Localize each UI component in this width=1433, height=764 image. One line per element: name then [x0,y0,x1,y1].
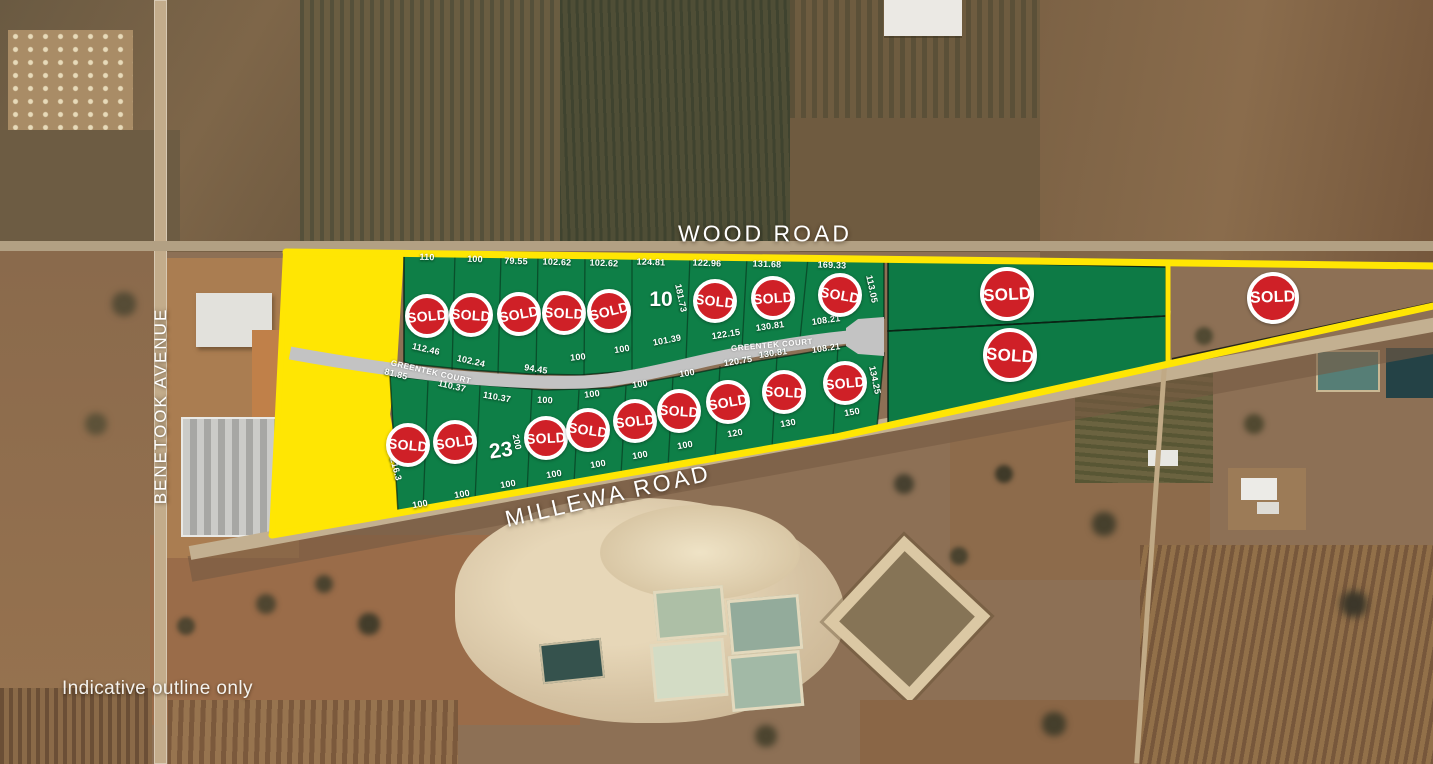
dimension-label: 131.68 [752,259,781,270]
dimension-label: 122.96 [692,258,721,269]
sold-badge: SOLD [693,279,737,323]
sold-badge-label: SOLD [544,305,585,321]
dimension-label: 100 [632,378,649,390]
sold-badge-label: SOLD [694,292,735,310]
sold-badge: SOLD [983,328,1037,382]
dimension-label: 100 [679,367,696,379]
benetook-avenue-label: BENETOOK AVENUE [151,308,171,505]
dimension-label: 100 [467,254,483,265]
dimension-label: 122.15 [711,327,741,341]
dimension-label: 100 [614,343,631,355]
dimension-label: 150 [843,406,860,419]
dimension-label: 100 [676,439,693,452]
wood-road-label: WOOD ROAD [678,221,852,248]
dimension-label: 113.05 [864,274,880,304]
sold-badge-label: SOLD [588,299,630,322]
dimension-label: 181.73 [673,283,689,313]
overlay-labels: 110112.46SOLD100102.24SOLD79.5594.45SOLD… [0,0,1433,764]
sold-badge: SOLD [587,289,631,333]
sold-badge: SOLD [497,292,541,336]
dimension-label: 102.62 [542,257,571,268]
dimension-label: 124.81 [636,257,665,268]
sold-badge-label: SOLD [406,307,447,324]
dimension-label: 100 [631,449,648,462]
sold-badge: SOLD [818,273,862,317]
dimension-label: 100 [499,478,516,491]
sold-badge-label: SOLD [982,284,1031,304]
subdivision-sales-map: 110112.46SOLD100102.24SOLD79.5594.45SOLD… [0,0,1433,764]
sold-badge-label: SOLD [567,420,609,439]
dimension-label: 120.75 [723,354,753,368]
dimension-label: 102.62 [589,258,618,269]
sold-badge-label: SOLD [498,304,540,325]
sold-badge-label: SOLD [764,384,805,400]
sold-badge-label: SOLD [819,285,861,306]
dimension-label: 79.55 [504,256,528,267]
dimension-label: 100 [453,488,470,501]
dimension-label: 100 [570,351,587,363]
sold-badge: SOLD [613,399,657,443]
sold-badge: SOLD [386,423,430,467]
sold-badge-label: SOLD [985,345,1035,365]
lot-number: 10 [649,288,672,312]
dimension-label: 130.81 [755,319,785,333]
sold-badge-label: SOLD [707,392,749,413]
dimension-label: 108.21 [811,341,841,355]
sold-badge: SOLD [751,276,795,320]
dimension-label: 100 [411,498,428,511]
sold-badge-label: SOLD [614,412,655,430]
sold-badge-label: SOLD [659,403,700,420]
sold-badge-label: SOLD [1250,289,1296,307]
dimension-label: 110 [419,252,434,263]
disclaimer-note: Indicative outline only [62,678,253,700]
sold-badge-label: SOLD [824,374,865,391]
sold-badge-label: SOLD [451,307,492,324]
dimension-label: 100 [589,458,606,471]
dimension-label: 112.46 [411,341,441,357]
sold-badge-label: SOLD [526,430,567,446]
sold-badge: SOLD [657,389,701,433]
sold-badge: SOLD [449,293,493,337]
sold-badge: SOLD [980,267,1034,321]
sold-badge-label: SOLD [434,432,476,451]
sold-badge: SOLD [433,420,477,464]
sold-badge: SOLD [566,408,610,452]
dimension-label: 94.45 [524,362,549,376]
dimension-label: 100 [537,395,553,406]
dimension-label: 110.37 [482,390,512,405]
sold-badge: SOLD [1247,272,1299,324]
sold-badge-label: SOLD [387,436,428,453]
dimension-label: 120 [726,427,743,440]
sold-badge: SOLD [823,361,867,405]
dimension-label: 102.24 [456,353,486,369]
dimension-label: 101.39 [652,332,682,347]
sold-badge: SOLD [762,370,806,414]
dimension-label: 134.25 [867,365,883,395]
sold-badge: SOLD [405,294,449,338]
dimension-label: 169.33 [817,260,846,271]
sold-badge: SOLD [706,380,750,424]
dimension-label: 100 [584,388,601,400]
sold-badge: SOLD [524,416,568,460]
lot-number: 23 [488,437,514,464]
sold-badge: SOLD [542,291,586,335]
dimension-label: 100 [545,468,562,481]
dimension-label: 130 [779,417,796,430]
sold-badge-label: SOLD [753,290,794,307]
